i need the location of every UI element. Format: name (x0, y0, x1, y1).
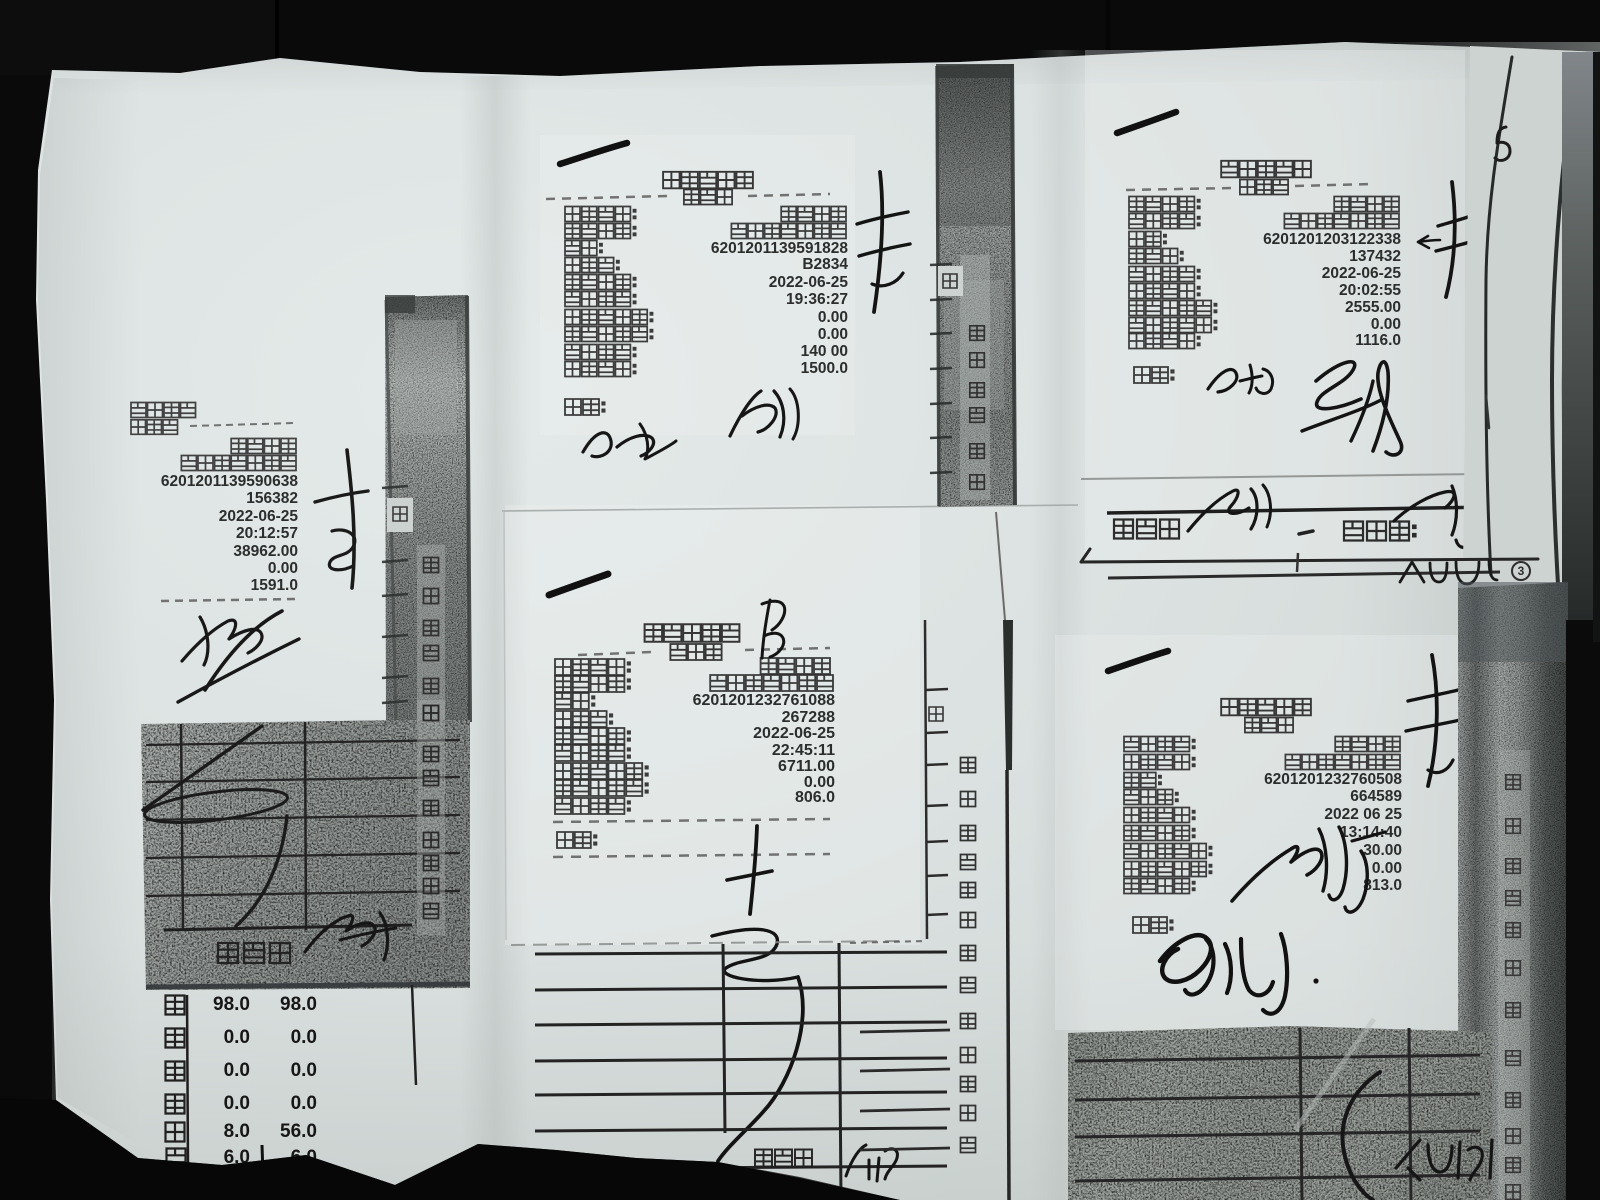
svg-text:2022-06-25: 2022-06-25 (769, 274, 849, 291)
svg-text:2022-06-25: 2022-06-25 (753, 725, 835, 742)
svg-text:0.00: 0.00 (1372, 860, 1402, 877)
svg-text:6201201139591828: 6201201139591828 (711, 240, 848, 257)
svg-text:20:02:55: 20:02:55 (1339, 282, 1401, 299)
svg-text:20:12:57: 20:12:57 (236, 525, 298, 542)
svg-text:0.0: 0.0 (224, 1093, 250, 1114)
svg-text:98.0: 98.0 (280, 994, 317, 1015)
svg-text:0.00: 0.00 (818, 309, 848, 326)
svg-text:8.0: 8.0 (224, 1121, 250, 1142)
svg-text:6201201203122338: 6201201203122338 (1263, 231, 1401, 248)
svg-text:813.0: 813.0 (1363, 877, 1402, 894)
svg-text:56.0: 56.0 (280, 1121, 317, 1142)
svg-text:6201201232761088: 6201201232761088 (693, 692, 835, 709)
svg-text:3: 3 (1518, 564, 1525, 578)
svg-text:140 00: 140 00 (801, 343, 848, 360)
svg-text:0.0: 0.0 (291, 1060, 317, 1081)
svg-text:664589: 664589 (1350, 788, 1402, 805)
svg-text:2555.00: 2555.00 (1345, 299, 1401, 316)
svg-text:267288: 267288 (782, 709, 835, 726)
svg-text:6711.00: 6711.00 (778, 758, 835, 775)
svg-text:0.0: 0.0 (224, 1060, 250, 1081)
svg-text:0.0: 0.0 (291, 1027, 317, 1048)
svg-text:30.00: 30.00 (1363, 842, 1402, 859)
svg-text:22:45:11: 22:45:11 (772, 742, 835, 759)
svg-text:1500.0: 1500.0 (801, 360, 848, 377)
svg-text:2022-06-25: 2022-06-25 (219, 508, 299, 525)
svg-text:2022 06 25: 2022 06 25 (1324, 806, 1402, 823)
svg-text:19:36:27: 19:36:27 (786, 291, 848, 308)
svg-text:156382: 156382 (246, 490, 298, 507)
svg-text:0.0: 0.0 (224, 1027, 250, 1048)
svg-text:B2834: B2834 (802, 256, 848, 273)
svg-text:38962.00: 38962.00 (233, 543, 298, 560)
svg-text:1116.0: 1116.0 (1355, 332, 1401, 349)
svg-text:1591.0: 1591.0 (251, 577, 298, 594)
svg-text:6201201139590638: 6201201139590638 (161, 473, 298, 490)
svg-text:0.00: 0.00 (818, 326, 848, 343)
svg-text:0.00: 0.00 (1371, 316, 1401, 333)
svg-text:2022-06-25: 2022-06-25 (1322, 265, 1402, 282)
svg-text:13:14:40: 13:14:40 (1340, 824, 1402, 841)
svg-text:0.0: 0.0 (291, 1093, 317, 1114)
svg-text:6201201232760508: 6201201232760508 (1264, 771, 1402, 788)
svg-text:806.0: 806.0 (795, 789, 835, 806)
svg-text:98.0: 98.0 (213, 994, 250, 1015)
svg-text:0.00: 0.00 (268, 560, 298, 577)
svg-text:137432: 137432 (1349, 248, 1401, 265)
